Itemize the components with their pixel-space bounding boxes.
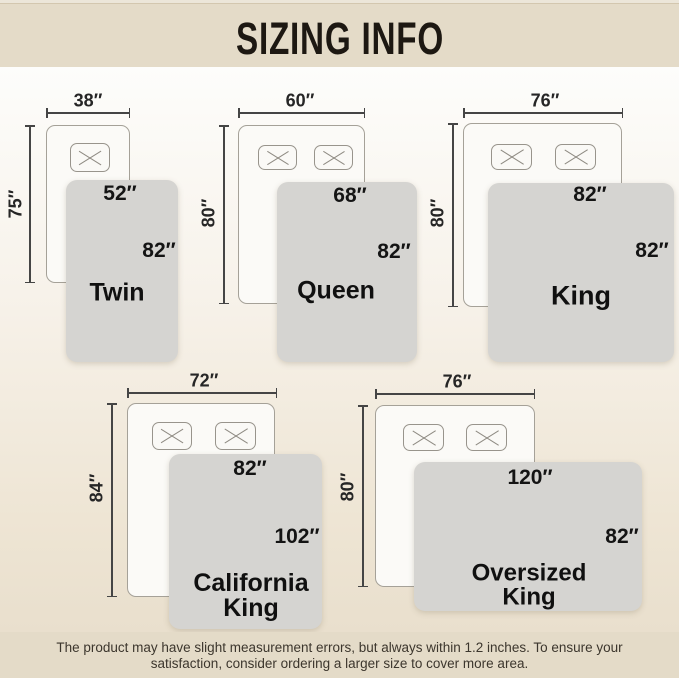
blanket-length-label: 82″ <box>635 239 668 263</box>
blanket-width-label: 120″ <box>507 466 552 490</box>
pillow-icon <box>70 143 110 172</box>
sizing-info-page: SIZING INFO 38″ 75″ 52″ 82″ Twin 60″ 80″… <box>0 0 679 678</box>
bed-length-label: 80″ <box>338 473 359 502</box>
bed-length-label: 84″ <box>87 474 108 503</box>
bed-length-label: 75″ <box>6 190 27 219</box>
pillow-icon <box>314 145 353 170</box>
blanket <box>488 183 674 362</box>
blanket-length-label: 82″ <box>605 525 638 549</box>
blanket-width-label: 68″ <box>333 184 366 208</box>
length-arrow <box>452 123 454 307</box>
bed-name-line: King <box>472 586 587 610</box>
bed-width-label: 38″ <box>74 91 103 112</box>
pillow-icon <box>555 144 596 170</box>
blanket <box>66 180 178 362</box>
bed-length-label: 80″ <box>428 199 449 228</box>
bed-name-line: Queen <box>297 279 375 304</box>
blanket <box>277 182 417 362</box>
length-arrow <box>362 405 364 587</box>
bed-name: Oversized King <box>472 562 587 611</box>
blanket-width-label: 82″ <box>573 183 606 207</box>
length-arrow <box>223 125 225 304</box>
pillow-icon <box>491 144 532 170</box>
pillow-icon <box>215 422 256 450</box>
bed-width-label: 60″ <box>286 91 315 112</box>
footer-note-line1: The product may have slight measurement … <box>56 640 622 655</box>
bed-name-line: Oversized <box>472 562 587 586</box>
length-arrow <box>111 403 113 597</box>
blanket-length-label: 82″ <box>142 239 175 263</box>
bed-width-label: 76″ <box>531 91 560 112</box>
bed-name: Queen <box>297 279 375 304</box>
pillow-icon <box>466 424 507 451</box>
blanket-width-label: 82″ <box>233 457 266 481</box>
bed-width-label: 72″ <box>190 371 219 392</box>
width-arrow <box>375 393 535 395</box>
footer-note-bar: The product may have slight measurement … <box>0 632 679 678</box>
footer-note-line2: satisfaction, consider ordering a larger… <box>151 656 528 671</box>
blanket-length-label: 102″ <box>274 525 319 549</box>
bed-name: King <box>551 283 611 310</box>
bed-name-line: King <box>551 283 611 310</box>
bed-length-label: 80″ <box>199 199 220 228</box>
width-arrow <box>127 392 277 394</box>
width-arrow <box>463 112 623 114</box>
length-arrow <box>29 125 31 283</box>
bed-name-line: Twin <box>89 281 144 306</box>
pillow-icon <box>403 424 444 451</box>
page-title: SIZING INFO <box>236 13 444 65</box>
width-arrow <box>238 112 365 114</box>
bed-width-label: 76″ <box>443 372 472 393</box>
bed-name: California King <box>193 571 308 621</box>
header-bar: SIZING INFO <box>0 0 679 67</box>
blanket-length-label: 82″ <box>377 240 410 264</box>
width-arrow <box>46 112 130 114</box>
bed-name-line: King <box>193 596 308 621</box>
pillow-icon <box>258 145 297 170</box>
bed-name-line: California <box>193 571 308 596</box>
blanket-width-label: 52″ <box>103 182 136 206</box>
pillow-icon <box>152 422 192 450</box>
bed-name: Twin <box>89 281 144 306</box>
